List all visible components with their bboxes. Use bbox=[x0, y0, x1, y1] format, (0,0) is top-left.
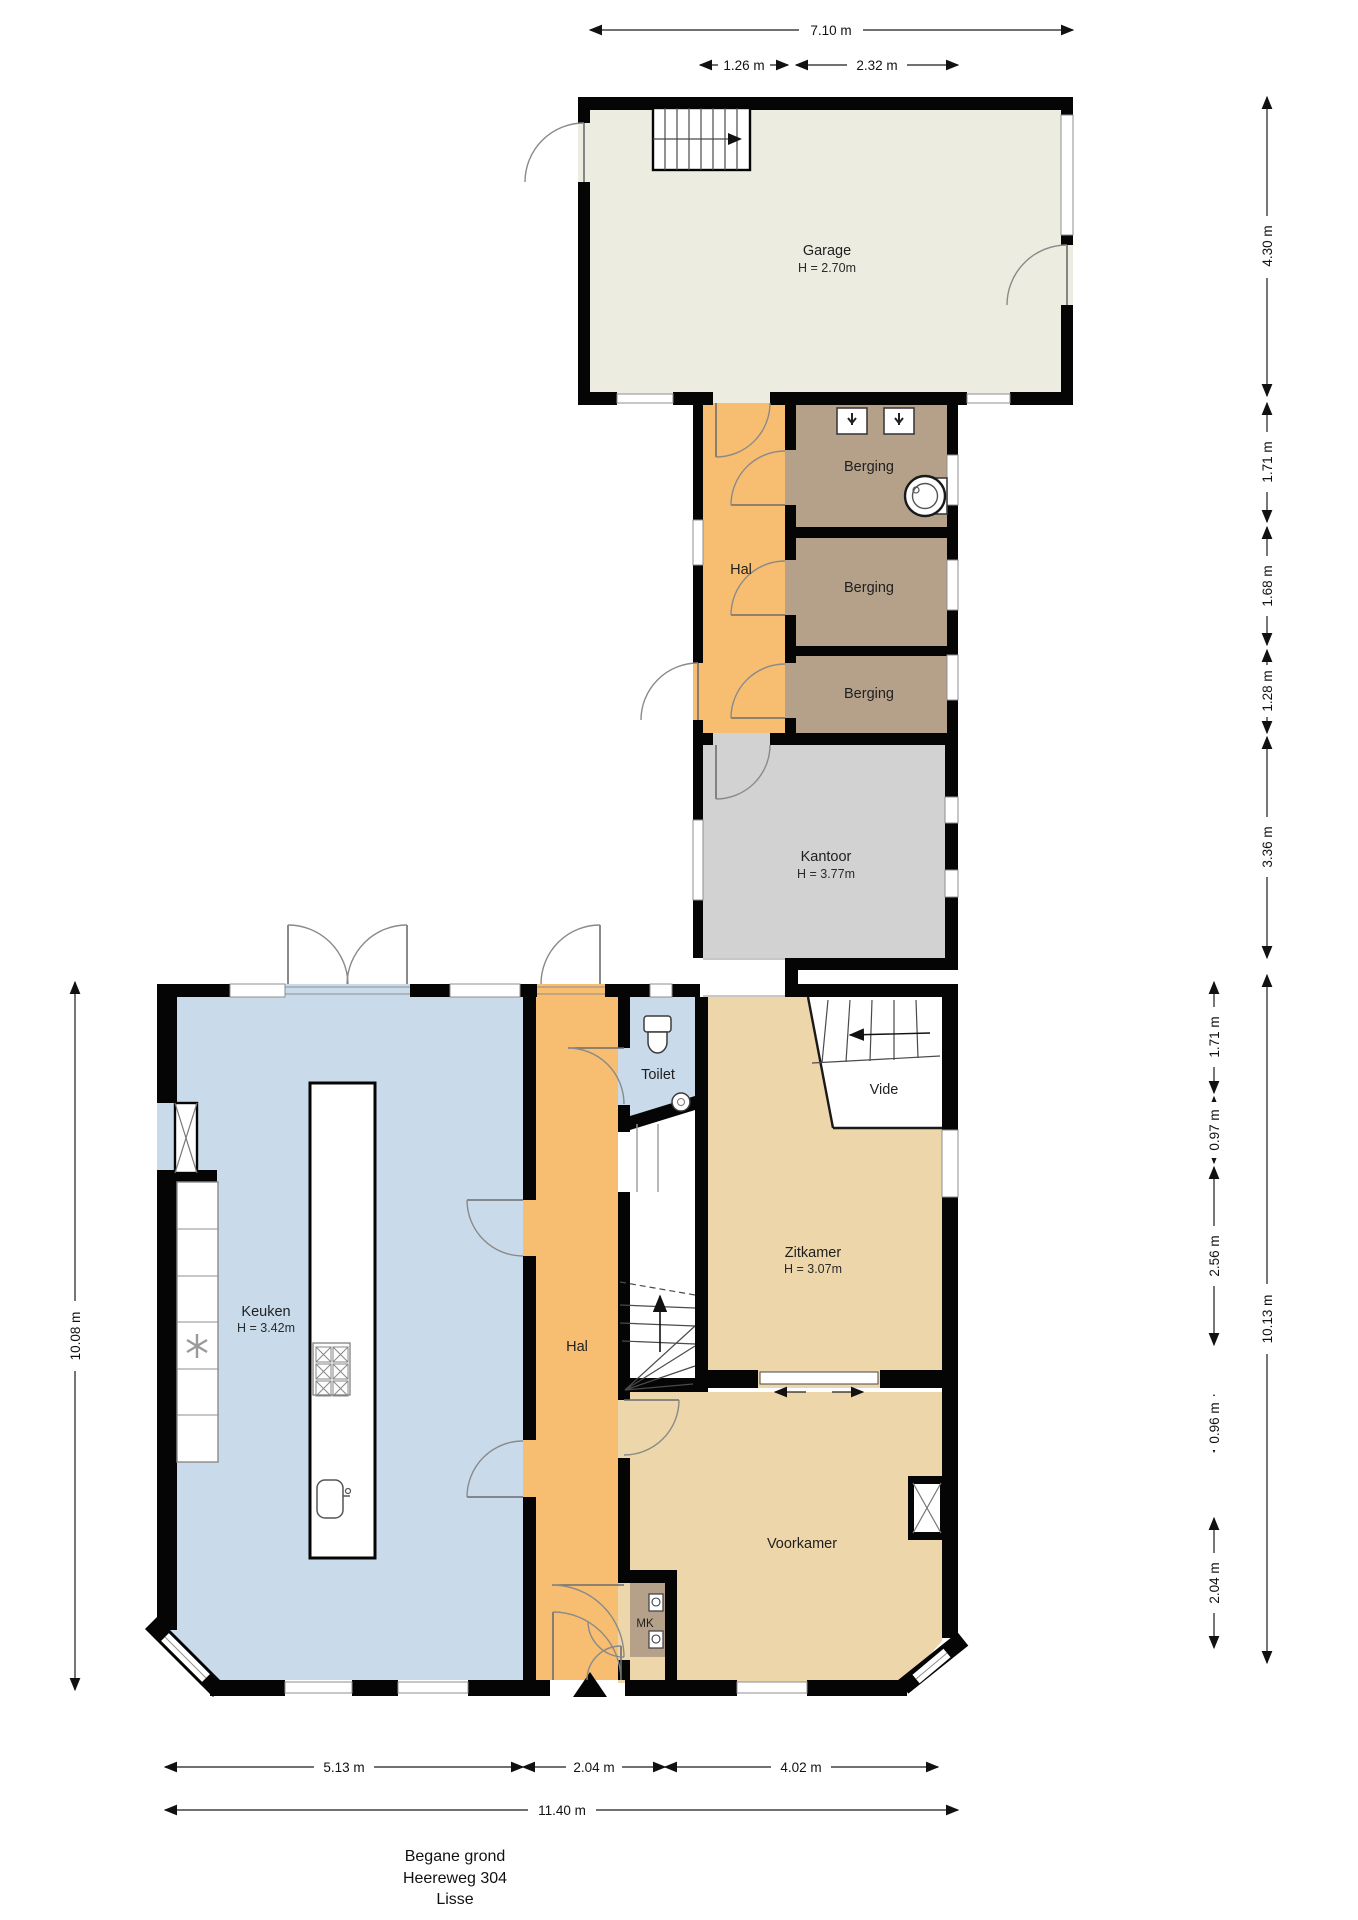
dim-top-berging: 2.32 m bbox=[856, 58, 897, 73]
chimney-icon bbox=[908, 1476, 958, 1540]
window-icon bbox=[737, 1682, 807, 1693]
window-icon bbox=[398, 1682, 468, 1693]
closet-floor bbox=[618, 1122, 708, 1194]
kitchen-island bbox=[310, 1083, 375, 1558]
window-icon bbox=[230, 984, 285, 997]
keuken-label: Keuken bbox=[241, 1304, 290, 1320]
window-icon bbox=[617, 394, 673, 403]
kantoor-height: H = 3.77m bbox=[797, 867, 855, 881]
kantoor-label: Kantoor bbox=[801, 849, 852, 865]
window-icon bbox=[450, 984, 520, 997]
title-city: Lisse bbox=[436, 1891, 473, 1908]
dim-right-berging1: 1.71 m bbox=[1260, 441, 1275, 482]
dim-inner-zitkamer: 2.56 m bbox=[1207, 1235, 1222, 1276]
zitkamer-height: H = 3.07m bbox=[784, 1262, 842, 1276]
hal-floor bbox=[523, 984, 630, 1680]
zitkamer-label: Zitkamer bbox=[785, 1245, 842, 1261]
meterkast-label: MK bbox=[636, 1618, 654, 1630]
sink-icon bbox=[672, 1093, 690, 1111]
window-icon bbox=[945, 797, 958, 823]
title-address: Heereweg 304 bbox=[403, 1870, 507, 1887]
kantoor-floor bbox=[693, 733, 958, 958]
window-icon bbox=[947, 455, 958, 505]
hal-boven-label: Hal bbox=[730, 562, 752, 578]
dim-bottom-keuken: 5.13 m bbox=[323, 1760, 364, 1775]
voorkamer-label: Voorkamer bbox=[767, 1536, 837, 1552]
stove-icon bbox=[313, 1343, 350, 1396]
title-block: Begane grond Heereweg 304 Lisse bbox=[403, 1848, 507, 1908]
chimney-icon bbox=[175, 1103, 197, 1173]
stairs-icon bbox=[653, 108, 750, 170]
dim-bottom-hal: 2.04 m bbox=[573, 1760, 614, 1775]
window-icon bbox=[967, 394, 1010, 403]
washing-machine-icon bbox=[905, 476, 947, 516]
coat-hook-icon bbox=[837, 408, 867, 434]
dim-inner-voorkamer-a: 0.96 m bbox=[1207, 1402, 1222, 1443]
kitchen-counter bbox=[177, 1182, 218, 1462]
dim-right-total: 10.13 m bbox=[1260, 1295, 1275, 1344]
window-icon bbox=[947, 560, 958, 610]
berging-floor bbox=[785, 403, 958, 733]
garage-height: H = 2.70m bbox=[798, 261, 856, 275]
floorplan-page: Garage H = 2.70m Hal Berging Berging Ber… bbox=[0, 0, 1358, 1920]
toilet-label: Toilet bbox=[641, 1067, 675, 1083]
window-icon bbox=[947, 655, 958, 700]
window-icon bbox=[1061, 115, 1073, 235]
dim-top-hal: 1.26 m bbox=[723, 58, 764, 73]
garage-label: Garage bbox=[803, 243, 851, 259]
dim-inner-voorkamer-b: 2.04 m bbox=[1207, 1562, 1222, 1603]
window-icon bbox=[945, 870, 958, 897]
stairwell-floor bbox=[618, 1194, 708, 1392]
dim-right-berging2: 1.68 m bbox=[1260, 565, 1275, 606]
window-icon bbox=[693, 520, 703, 565]
title-floor: Begane grond bbox=[405, 1848, 506, 1865]
window-icon bbox=[650, 984, 672, 997]
dim-inner-window: 0.97 m bbox=[1207, 1109, 1222, 1150]
dim-bottom-total: 11.40 m bbox=[538, 1803, 586, 1818]
window-icon bbox=[285, 1682, 352, 1693]
dim-top-total: 7.10 m bbox=[810, 23, 851, 38]
sliding-door-icon bbox=[760, 1372, 878, 1392]
dim-right-berging3: 1.28 m bbox=[1260, 670, 1275, 711]
vide-label: Vide bbox=[870, 1082, 899, 1098]
floorplan-drawing: Garage H = 2.70m Hal Berging Berging Ber… bbox=[0, 0, 1358, 1920]
hal-label: Hal bbox=[566, 1339, 588, 1355]
coat-hook-icon bbox=[884, 408, 914, 434]
dim-inner-vide: 1.71 m bbox=[1207, 1016, 1222, 1057]
room-fills bbox=[157, 97, 1073, 1683]
berging2-label: Berging bbox=[844, 580, 894, 596]
keuken-height: H = 3.42m bbox=[237, 1321, 295, 1335]
dim-bottom-voorkamer: 4.02 m bbox=[780, 1760, 821, 1775]
dim-right-garage: 4.30 m bbox=[1260, 225, 1275, 266]
dim-left-total: 10.08 m bbox=[68, 1312, 83, 1361]
berging3-label: Berging bbox=[844, 686, 894, 702]
berging1-label: Berging bbox=[844, 459, 894, 475]
dim-right-kantoor: 3.36 m bbox=[1260, 826, 1275, 867]
window-icon bbox=[942, 1130, 958, 1197]
window-icon bbox=[693, 820, 703, 900]
